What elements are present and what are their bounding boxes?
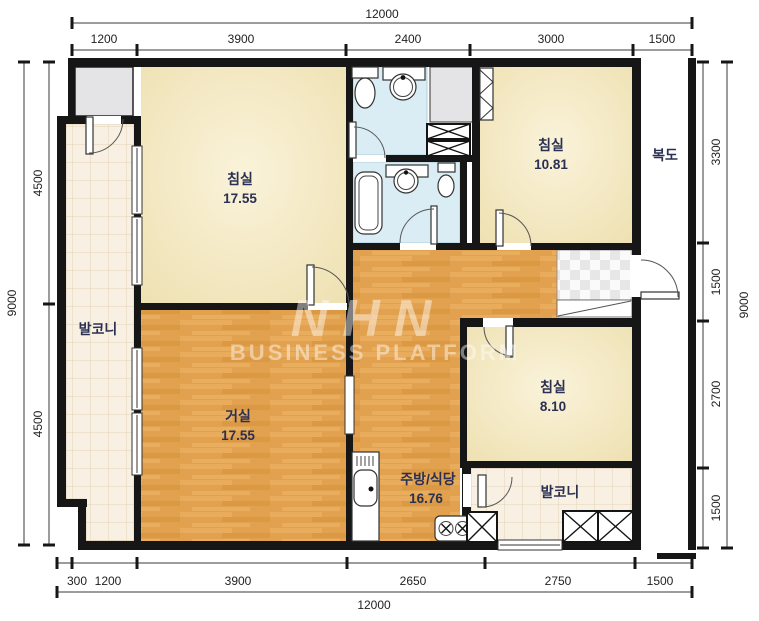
- dim-top-2: 2400: [395, 32, 422, 46]
- wall-segment: [346, 243, 400, 250]
- basin-drain-dot: [401, 75, 406, 80]
- living-label: 거실: [225, 408, 251, 424]
- dim-tick: [56, 557, 59, 569]
- bedroom3-area: 8.10: [540, 399, 566, 414]
- kitchen-area: 16.76: [409, 491, 443, 506]
- dim-top-0: 1200: [91, 32, 118, 46]
- wall-segment: [531, 243, 641, 250]
- entrance-checker-floor: [557, 250, 632, 300]
- bedroom2-area: 10.81: [534, 157, 568, 172]
- door-leaf: [431, 206, 437, 244]
- dim-right-0: 3300: [709, 138, 723, 165]
- door-leaf: [496, 210, 503, 246]
- door-jamb: [353, 155, 386, 162]
- bedroom2-label: 침실: [538, 137, 564, 153]
- wall-segment: [513, 318, 641, 327]
- sink-counter: [352, 67, 378, 78]
- dim-tick: [43, 303, 55, 306]
- dim-top-1: 3900: [228, 32, 255, 46]
- dim-tick: [43, 61, 55, 64]
- dim-tick: [691, 586, 694, 598]
- dim-tick: [697, 61, 709, 64]
- bedroom3-label: 침실: [540, 379, 566, 395]
- dim-tick: [346, 557, 349, 569]
- wall-segment: [460, 243, 497, 250]
- bedroom1-area: 17.55: [223, 191, 257, 206]
- kitchen-label: 주방/식당: [400, 471, 456, 487]
- dim-tick: [697, 547, 709, 550]
- dim-tick: [56, 586, 59, 598]
- wall-segment: [346, 58, 353, 310]
- dim-top-total: 12000: [365, 7, 399, 21]
- wall-segment: [68, 58, 641, 67]
- floor-plan: NHN BUSINESS PLATFORM 침실 17.55 침실 10.81 …: [0, 0, 759, 621]
- dim-right-1: 1500: [709, 268, 723, 295]
- dim-bottom-4: 2750: [545, 574, 572, 588]
- wall-segment: [460, 461, 641, 468]
- dim-tick: [71, 557, 74, 569]
- dim-bottom-2: 3900: [225, 574, 252, 588]
- living-area: 17.55: [221, 428, 255, 443]
- dim-bottom-total: 12000: [357, 598, 391, 612]
- dim-tick: [345, 44, 348, 56]
- dim-tick: [136, 44, 139, 56]
- dim-bottom-0: 300: [67, 574, 87, 588]
- sliding-door-opening: [345, 376, 354, 434]
- wall-segment: [57, 116, 66, 507]
- dim-right-2: 2700: [709, 380, 723, 407]
- dim-tick: [691, 557, 694, 569]
- dim-tick: [484, 557, 487, 569]
- utility-closet-gray: [430, 67, 477, 122]
- balcony-left-label: 발코니: [79, 321, 118, 337]
- dim-left-total: 9000: [5, 289, 19, 316]
- sink-drain-dot: [369, 487, 374, 492]
- dim-tick: [136, 557, 139, 569]
- entry-closet-gray: [75, 67, 133, 116]
- dim-tick: [721, 61, 733, 64]
- dim-bottom-1: 1200: [95, 574, 122, 588]
- kitchen-sink-icon: [354, 470, 377, 506]
- dim-tick: [18, 61, 30, 64]
- basin-drain-dot: [404, 170, 408, 174]
- door-jamb: [463, 474, 471, 507]
- toilet-tank: [438, 163, 455, 172]
- dim-right-total: 9000: [737, 291, 751, 318]
- dim-tick: [691, 44, 694, 56]
- dim-right-3: 1500: [709, 494, 723, 521]
- wall-segment: [78, 499, 86, 550]
- wall-segment: [632, 58, 641, 550]
- wall-segment: [436, 243, 460, 250]
- door-leaf: [478, 475, 486, 507]
- dim-tick: [634, 557, 637, 569]
- pedestal-sink-icon: [355, 78, 375, 108]
- balcony-right-label: 발코니: [541, 484, 580, 500]
- bedroom1-label: 침실: [227, 171, 253, 187]
- dim-tick: [43, 544, 55, 547]
- wall-segment: [68, 58, 75, 120]
- dim-top-4: 1500: [649, 32, 676, 46]
- door-leaf: [86, 117, 93, 154]
- corridor-label: 복도: [652, 147, 678, 163]
- dim-tick: [71, 17, 74, 29]
- dim-left-0: 4500: [31, 169, 45, 196]
- dim-bottom-5: 1500: [647, 574, 674, 588]
- dim-left-1: 4500: [31, 410, 45, 437]
- dim-bottom-3: 2650: [400, 574, 427, 588]
- dim-tick: [632, 44, 635, 56]
- dim-tick: [691, 17, 694, 29]
- corridor-outer-wall: [688, 58, 696, 550]
- dim-tick: [697, 320, 709, 323]
- toilet-bowl-icon: [438, 175, 454, 197]
- entrance-door-jamb: [630, 255, 642, 297]
- wall-segment: [472, 58, 480, 250]
- dim-top-3: 3000: [538, 32, 565, 46]
- dim-tick: [697, 467, 709, 470]
- watermark-text: BUSINESS PLATFORM: [230, 340, 520, 365]
- dim-tick: [18, 544, 30, 547]
- wall-segment: [657, 553, 696, 559]
- dim-tick: [721, 547, 733, 550]
- entrance-door-leaf: [641, 292, 679, 299]
- dim-tick: [71, 44, 74, 56]
- wall-segment: [460, 162, 467, 250]
- wall-segment: [134, 303, 308, 310]
- floor-plan-drawing: NHN BUSINESS PLATFORM 침실 17.55 침실 10.81 …: [0, 0, 759, 621]
- dim-tick: [469, 44, 472, 56]
- dim-tick: [697, 242, 709, 245]
